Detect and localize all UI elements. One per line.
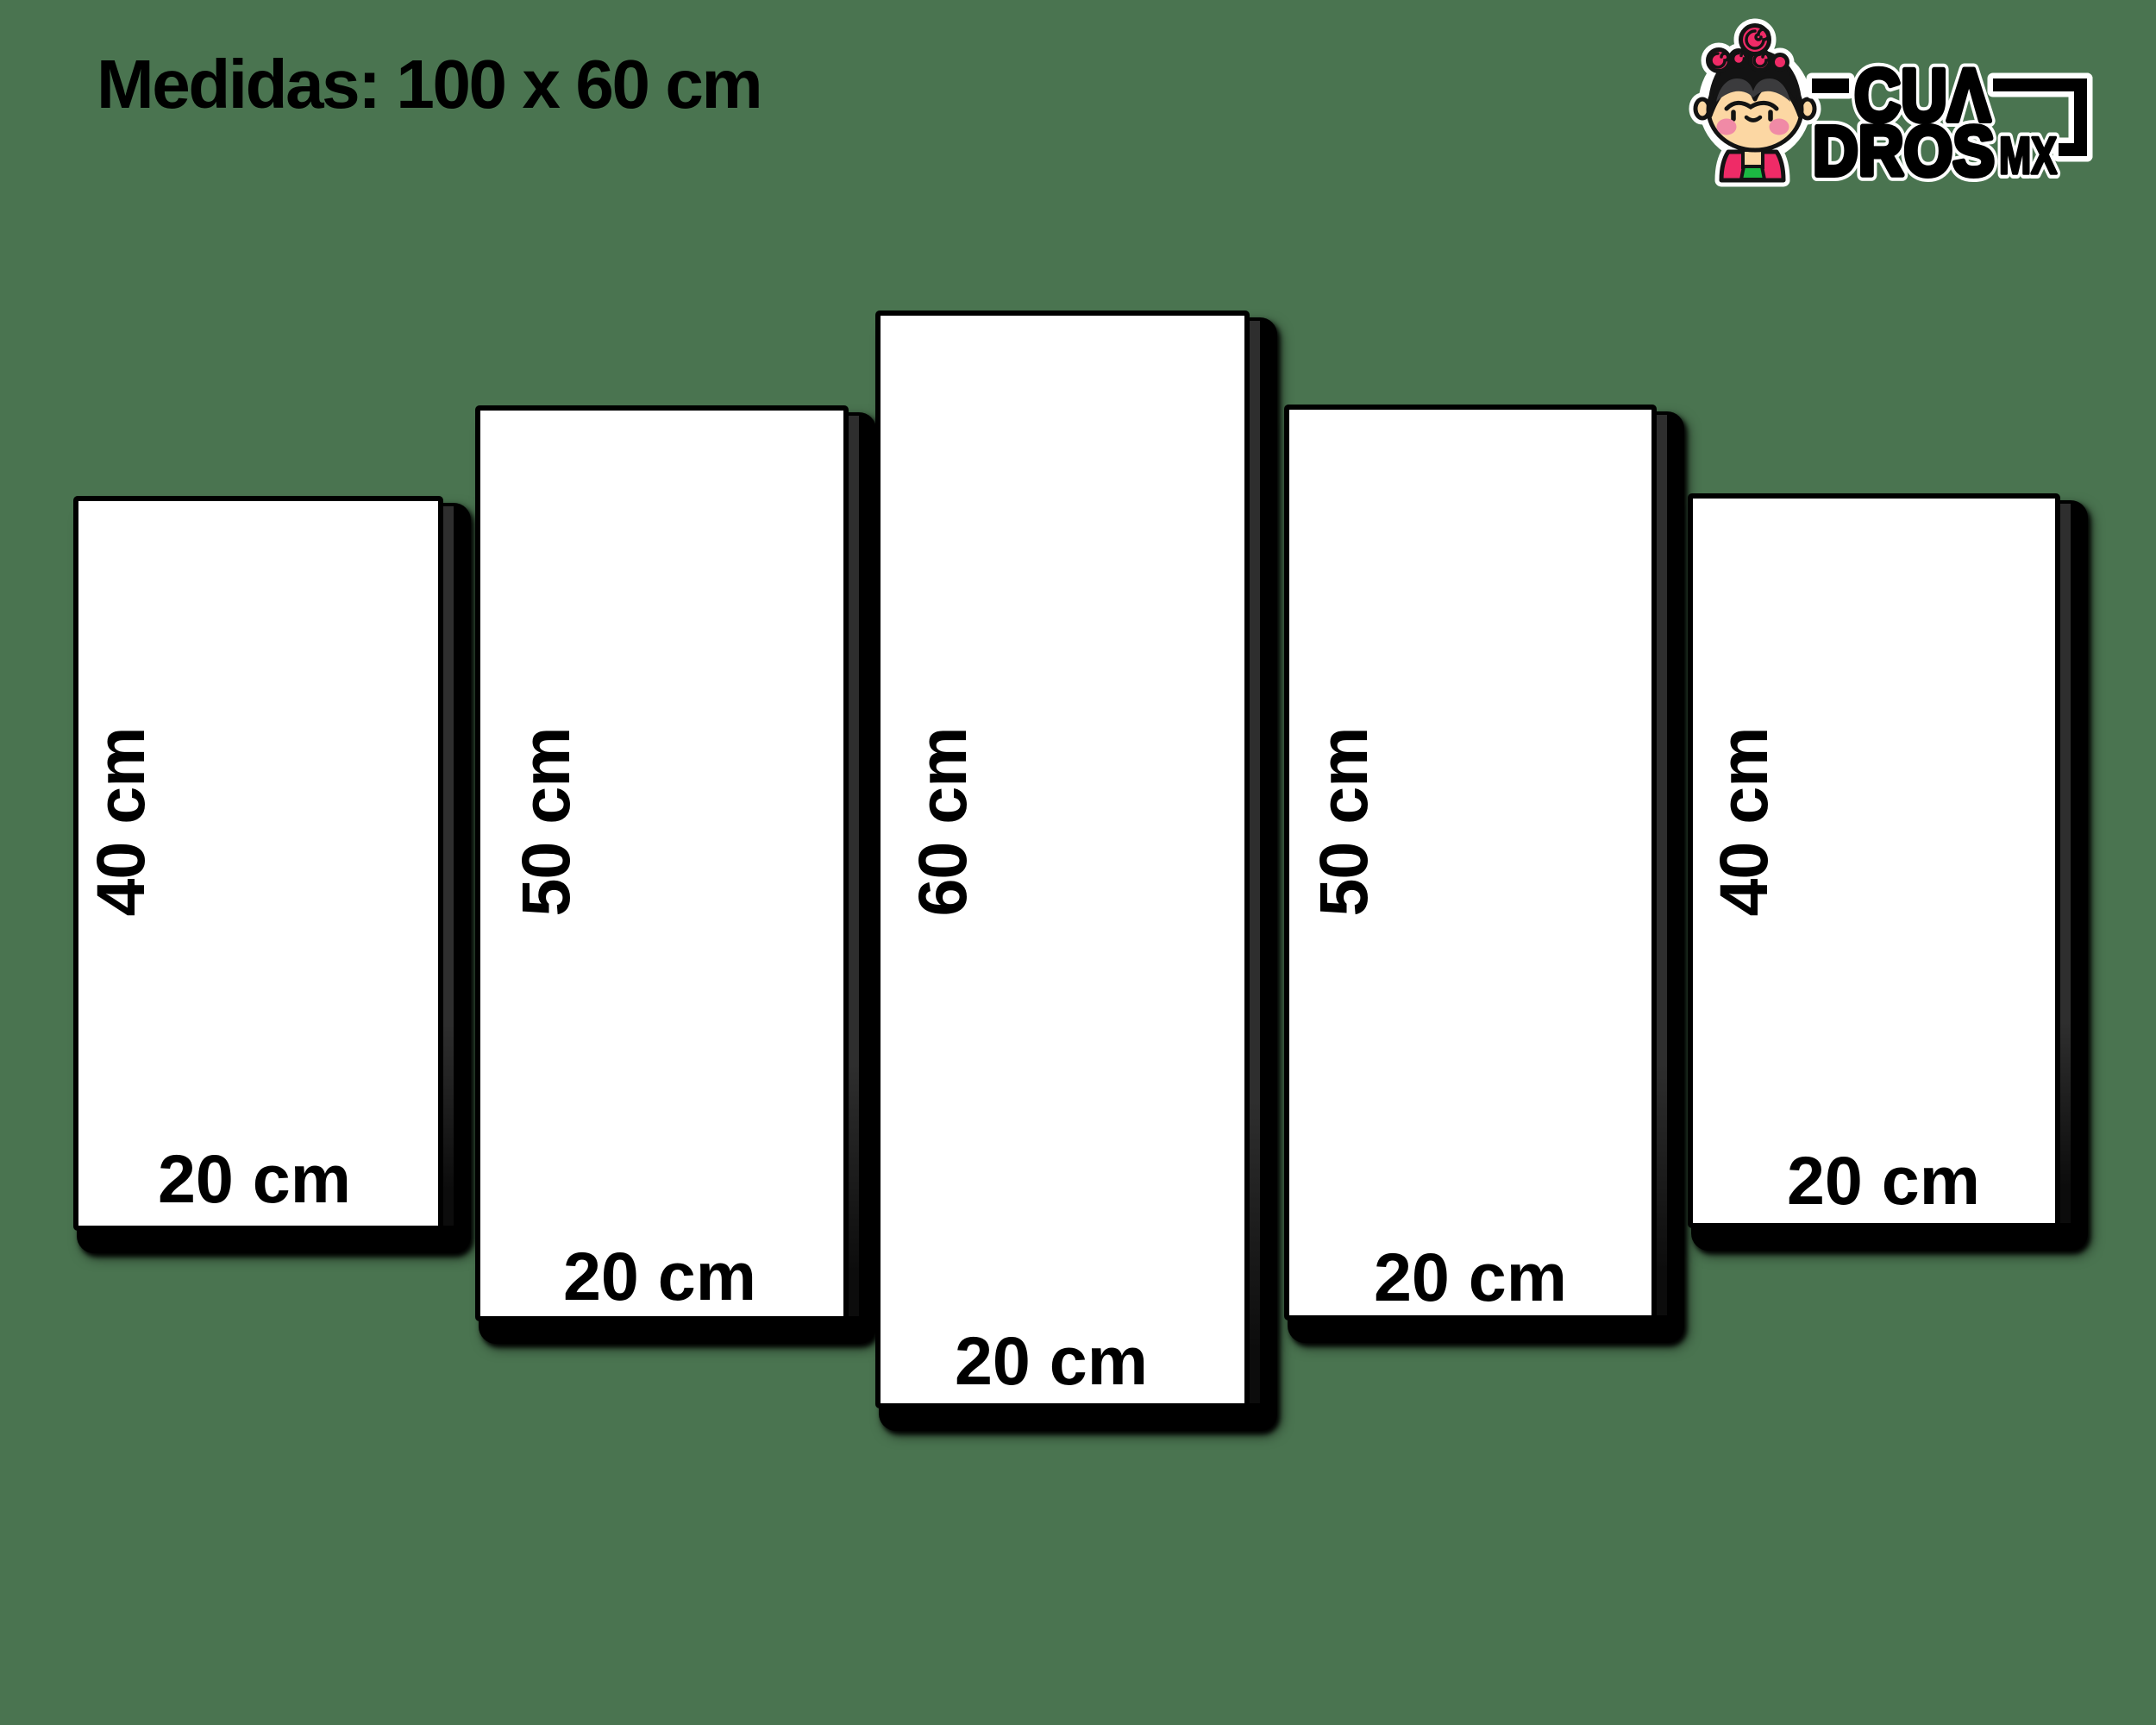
svg-text:DROS: DROS	[1813, 112, 1995, 191]
svg-text:MX: MX	[1999, 127, 2057, 185]
